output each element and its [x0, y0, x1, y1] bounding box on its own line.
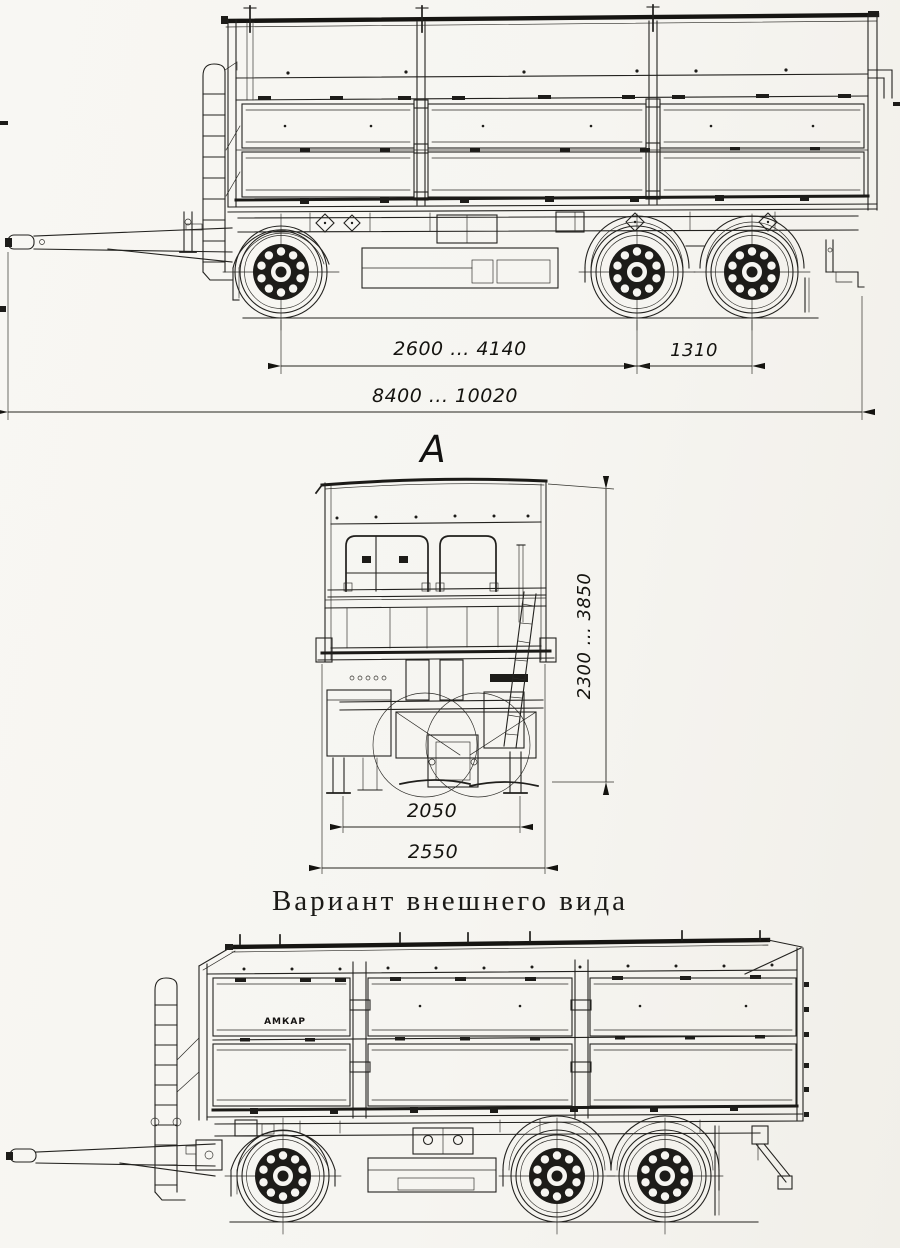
variant-view-drawing: АМКАР: [6, 931, 809, 1234]
variant-ladder: [151, 978, 199, 1200]
side-view-rear-wheel: [694, 214, 810, 330]
dim-overall-length-label: 8400 ... 10020: [372, 385, 518, 407]
drawing-page: 2600 ... 4140 1310 8400 ... 10020 А: [0, 0, 900, 1248]
variant-caption: Вариант внешнего вида: [272, 885, 628, 917]
variant-body: АМКАР: [199, 946, 809, 1120]
side-view-body: [228, 15, 892, 212]
body-logo: АМКАР: [264, 1017, 306, 1027]
view-a-label: А: [418, 428, 445, 471]
side-view-middle-wheel: [579, 214, 695, 330]
side-view-tarp-bar: [221, 5, 879, 32]
variant-middle-wheel: [499, 1118, 615, 1234]
variant-tarp-bar: [225, 931, 802, 952]
variant-drawbar: [6, 1140, 222, 1176]
front-view-body: [316, 479, 556, 662]
trailer-drawing-canvas: 2600 ... 4140 1310 8400 ... 10020 А: [0, 0, 900, 1248]
dim-overall-width-label: 2550: [408, 841, 458, 863]
variant-rear-wheel: [607, 1118, 723, 1234]
dim-height-label: 2300 ... 3850: [574, 573, 595, 700]
dim-axle-base-label: 2600 ... 4140: [393, 338, 526, 360]
side-view-ladder: [203, 62, 240, 280]
side-view-drawbar: [5, 224, 232, 262]
dim-support-track-label: 2050: [407, 800, 457, 822]
front-view-undercarriage: [327, 592, 543, 793]
side-view-drawing: 2600 ... 4140 1310 8400 ... 10020: [5, 5, 892, 420]
front-view-drawing: 2300 ... 3850 2050 2550: [316, 479, 614, 874]
dim-tandem-spacing-label: 1310: [670, 340, 718, 361]
front-view-dimensions: 2300 ... 3850 2050 2550: [322, 484, 614, 874]
